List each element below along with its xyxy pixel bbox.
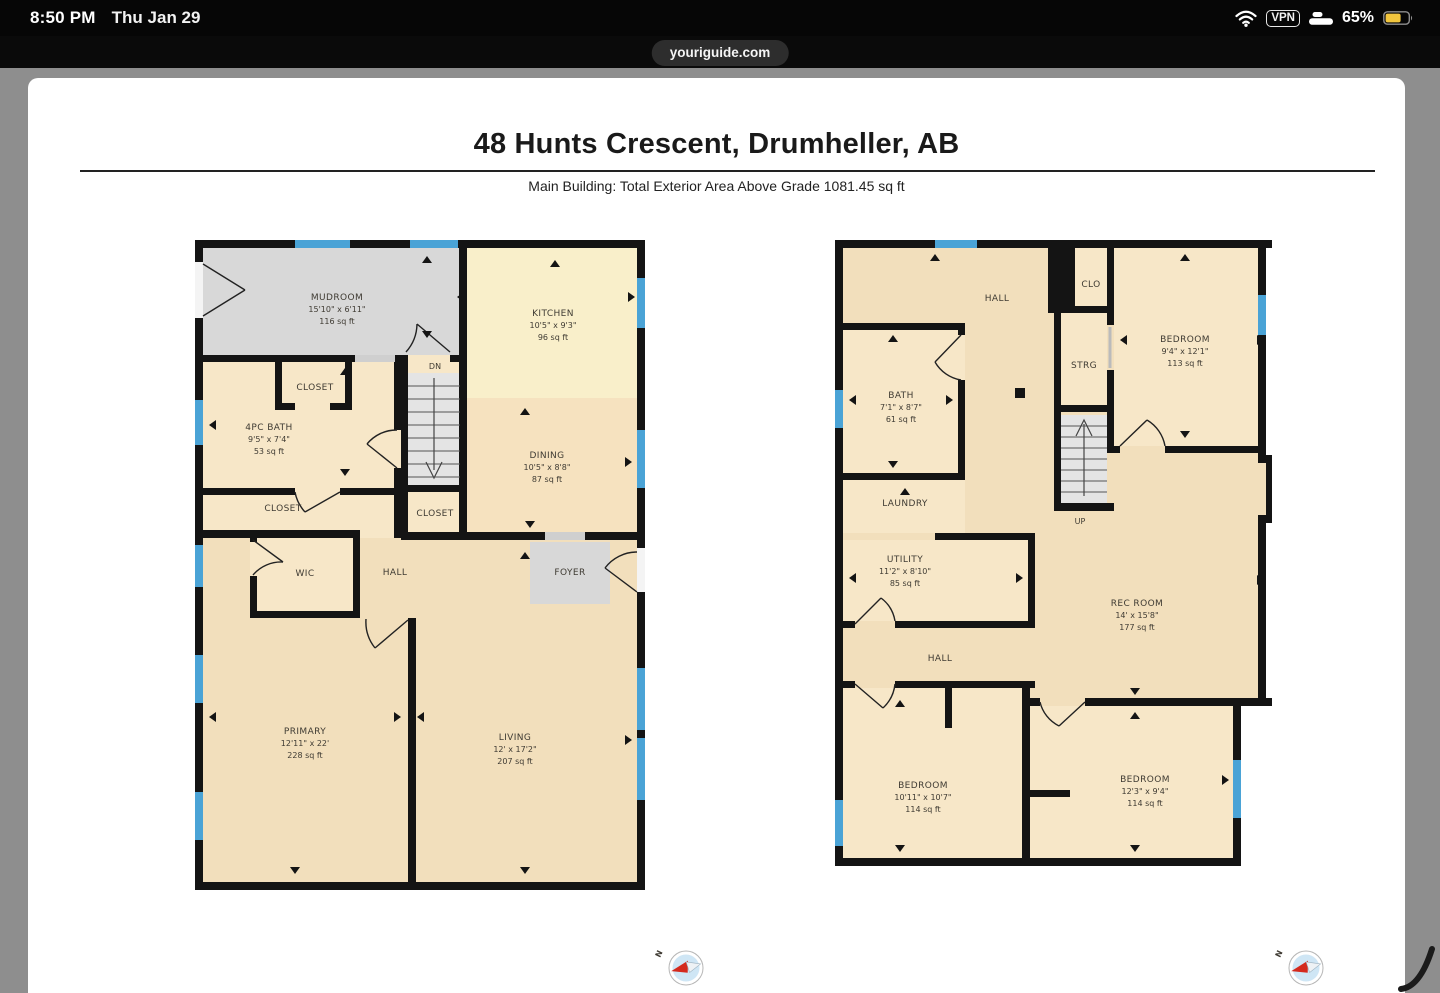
svg-text:BEDROOM: BEDROOM xyxy=(1120,775,1170,785)
room-living: LIVING 12' x 17'2" 207 sq ft xyxy=(493,733,536,766)
svg-text:177 sq ft: 177 sq ft xyxy=(1119,623,1154,632)
room-primary: PRIMARY 12'11" x 22' 228 sq ft xyxy=(281,727,329,760)
compass-icon-main: N xyxy=(650,942,710,990)
room-strg: STRG xyxy=(1071,361,1097,371)
svg-text:15'10" x 6'11": 15'10" x 6'11" xyxy=(308,305,365,314)
svg-text:96 sq ft: 96 sq ft xyxy=(538,333,568,342)
svg-text:113 sq ft: 113 sq ft xyxy=(1167,359,1202,368)
svg-text:10'5" x 8'8": 10'5" x 8'8" xyxy=(523,463,570,472)
svg-text:85 sq ft: 85 sq ft xyxy=(890,579,920,588)
clock: 8:50 PM xyxy=(30,8,96,28)
page-subtitle: Main Building: Total Exterior Area Above… xyxy=(28,178,1405,194)
compass-north-label: N xyxy=(654,949,665,959)
foyer-entry-opening xyxy=(637,548,645,592)
entry-opening xyxy=(195,262,203,318)
battery-icon xyxy=(1383,11,1414,25)
compass-icon-basement: N xyxy=(1270,942,1330,990)
svg-text:11'2" x 8'10": 11'2" x 8'10" xyxy=(879,567,931,576)
room-foyer: FOYER xyxy=(554,568,585,578)
stairs-up-label: UP xyxy=(1075,517,1086,526)
svg-text:87 sq ft: 87 sq ft xyxy=(532,475,562,484)
svg-text:9'4" x 12'1": 9'4" x 12'1" xyxy=(1161,347,1208,356)
room-closet-mid: CLOSET xyxy=(264,504,301,514)
room-hall-lower: HALL xyxy=(928,654,953,664)
room-closet-top: CLOSET xyxy=(296,383,333,393)
room-hall-upper: HALL xyxy=(985,294,1010,304)
room-closet-stairs: CLOSET xyxy=(416,509,453,519)
svg-text:PRIMARY: PRIMARY xyxy=(284,727,326,737)
page-curl-mark xyxy=(1398,945,1440,993)
svg-text:REC ROOM: REC ROOM xyxy=(1111,599,1163,609)
floorplan-page: 48 Hunts Crescent, Drumheller, AB Main B… xyxy=(28,78,1405,993)
svg-text:207 sq ft: 207 sq ft xyxy=(497,757,532,766)
svg-text:LIVING: LIVING xyxy=(499,733,532,743)
svg-text:114 sq ft: 114 sq ft xyxy=(1127,799,1162,808)
keyboard-icon xyxy=(1309,12,1333,25)
room-bedroom-ne: BEDROOM 9'4" x 12'1" 113 sq ft xyxy=(1160,335,1210,368)
svg-text:9'5" x 7'4": 9'5" x 7'4" xyxy=(248,435,290,444)
page-title: 48 Hunts Crescent, Drumheller, AB xyxy=(28,128,1405,161)
basement-floor-plan: HALL CLO BEDROOM 9'4" x 12'1" 113 sq ft … xyxy=(835,240,1275,870)
svg-text:228 sq ft: 228 sq ft xyxy=(287,751,322,760)
svg-text:10'5" x 9'3": 10'5" x 9'3" xyxy=(529,321,576,330)
compass-north-label: N xyxy=(1274,949,1285,959)
svg-text:KITCHEN: KITCHEN xyxy=(532,309,574,319)
status-bar: 8:50 PM Thu Jan 29 VPN 65% xyxy=(0,0,1440,36)
svg-text:12' x 17'2": 12' x 17'2" xyxy=(493,745,536,754)
svg-text:BEDROOM: BEDROOM xyxy=(898,781,948,791)
date: Thu Jan 29 xyxy=(112,8,201,28)
svg-text:4PC BATH: 4PC BATH xyxy=(245,423,292,433)
room-bedroom-se: BEDROOM 12'3" x 9'4" 114 sq ft xyxy=(1120,775,1170,808)
wifi-icon xyxy=(1235,10,1257,27)
svg-text:14' x 15'8": 14' x 15'8" xyxy=(1115,611,1158,620)
browser-toolbar: youriguide.com xyxy=(0,36,1440,68)
room-wic: WIC xyxy=(295,569,314,579)
svg-text:MUDROOM: MUDROOM xyxy=(311,293,363,303)
battery-percent: 65% xyxy=(1342,9,1374,27)
svg-text:10'11" x 10'7": 10'11" x 10'7" xyxy=(894,793,951,802)
svg-text:114 sq ft: 114 sq ft xyxy=(905,805,940,814)
svg-text:12'11" x 22': 12'11" x 22' xyxy=(281,739,329,748)
svg-text:UTILITY: UTILITY xyxy=(887,555,923,565)
room-hall: HALL xyxy=(383,568,408,578)
room-laundry: LAUNDRY xyxy=(882,499,928,509)
stairs-dn-label: DN xyxy=(429,362,441,371)
vpn-badge: VPN xyxy=(1266,10,1300,27)
title-divider xyxy=(80,170,1375,172)
address-bar[interactable]: youriguide.com xyxy=(652,40,789,66)
svg-text:BEDROOM: BEDROOM xyxy=(1160,335,1210,345)
svg-text:12'3" x 9'4": 12'3" x 9'4" xyxy=(1121,787,1168,796)
svg-text:BATH: BATH xyxy=(888,391,914,401)
main-floor-plan: MUDROOM 15'10" x 6'11" 116 sq ft KITCHEN… xyxy=(195,240,645,890)
svg-text:116 sq ft: 116 sq ft xyxy=(319,317,354,326)
room-clo: CLO xyxy=(1081,280,1100,290)
svg-text:53 sq ft: 53 sq ft xyxy=(254,447,284,456)
main-floor-fills xyxy=(203,248,637,882)
support-post xyxy=(1015,388,1025,398)
svg-text:7'1" x 8'7": 7'1" x 8'7" xyxy=(880,403,922,412)
svg-text:DINING: DINING xyxy=(529,451,564,461)
svg-text:61 sq ft: 61 sq ft xyxy=(886,415,916,424)
